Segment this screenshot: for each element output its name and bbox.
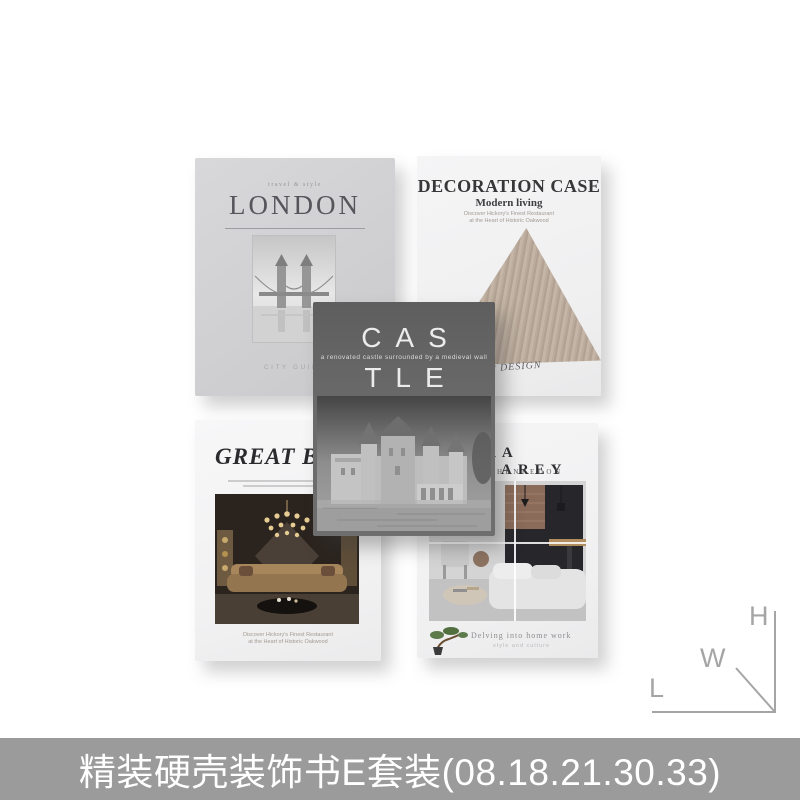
caption-text: 精装硬壳装饰书E套装(08.18.21.30.33)	[79, 742, 721, 796]
london-tagline: travel & style	[195, 182, 395, 188]
ra-barey-subtitle: HENREDON	[497, 468, 564, 476]
castle-title-line1: CAS	[313, 322, 495, 354]
product-photo-page: { "page": { "background_color": "#ffffff…	[0, 0, 800, 800]
great-britain-blurb-line1: Discover Hickory's Finest Restaurant	[195, 632, 381, 638]
great-britain-blurb-line2: at the Heart of Historic Oakwood	[195, 639, 381, 645]
caption-bar: 精装硬壳装饰书E套装(08.18.21.30.33)	[0, 738, 800, 800]
bonsai-plant-icon	[427, 623, 469, 655]
london-title: LONDON	[195, 190, 395, 221]
ra-barey-footer: Delving into home work	[471, 631, 571, 640]
watermark-letter-w: W	[700, 643, 725, 674]
watermark-letter-l: L	[649, 673, 664, 704]
ra-barey-footer-sub: style and culture	[493, 643, 550, 649]
bonsai-illustration	[427, 623, 469, 655]
castle-illustration	[317, 396, 491, 531]
london-divider	[225, 228, 365, 229]
decoration-case-blurb-line2: at the Heart of Historic Oakwood	[417, 218, 601, 224]
castle-tagline: a renovated castle surrounded by a medie…	[313, 354, 495, 361]
castle-photo	[317, 396, 491, 531]
decoration-case-blurb-line1: Discover Hickory's Finest Restaurant	[417, 211, 601, 217]
decoration-case-subtitle: Modern living	[417, 197, 601, 209]
castle-title-line2: TLE	[313, 362, 495, 394]
dimension-watermark: H W L	[645, 585, 790, 720]
book-castle: CAS a renovated castle surrounded by a m…	[313, 302, 495, 536]
watermark-letter-h: H	[749, 601, 769, 632]
decoration-case-title: DECORATION CASE	[417, 176, 601, 197]
